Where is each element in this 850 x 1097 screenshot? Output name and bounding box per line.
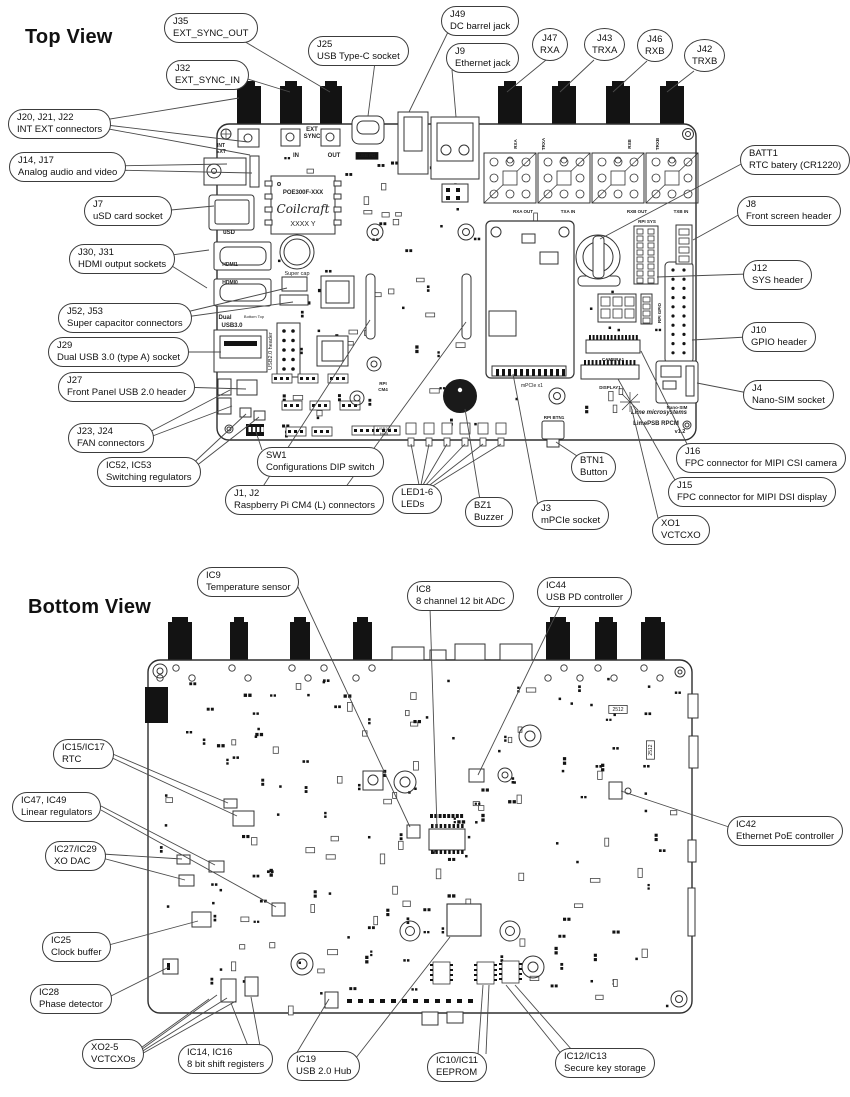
- silkscreen-text: USB3.0: [221, 323, 243, 329]
- usb2-header-icon: [277, 323, 300, 377]
- callout-desc: EXT_SYNC_OUT: [173, 28, 249, 40]
- callout-ref: J30, J31: [78, 247, 166, 259]
- pcb-annotation-diagram: EXTSYNCINOUTINTEXTUSB PDPOE300F-XXXCoilc…: [0, 0, 850, 1097]
- callout-ref: J27: [67, 375, 186, 387]
- regulator-icon: [240, 408, 251, 417]
- callout-ic25: IC25Clock buffer: [42, 932, 111, 962]
- callout-ref: BZ1: [474, 500, 504, 512]
- callout-ref: J15: [677, 480, 827, 492]
- callout-ref: J46: [645, 34, 665, 46]
- silkscreen-text: CAMERA1: [602, 357, 625, 362]
- callout-ref: XO2-5: [91, 1042, 135, 1054]
- gpio-header-icon: [665, 262, 693, 363]
- callout-j20: J20, J21, J22INT EXT connectors: [8, 109, 111, 139]
- silkscreen-text: uSD: [223, 230, 236, 236]
- callout-j12: J12SYS header: [743, 260, 812, 290]
- callout-j14: J14, J17Analog audio and video: [9, 152, 126, 182]
- super-cap-icon: [280, 235, 314, 269]
- starburst-icon: [620, 392, 640, 412]
- callout-ic27: IC27/IC29XO DAC: [45, 841, 106, 871]
- callout-j32: J32EXT_SYNC_IN: [166, 60, 249, 90]
- callout-desc: mPCIe socket: [541, 515, 600, 527]
- callout-desc: DC barrel jack: [450, 21, 510, 33]
- callout-ref: IC15/IC17: [62, 742, 105, 754]
- dc-barrel-jack-icon: [398, 112, 428, 174]
- callout-ic28: IC28Phase detector: [30, 984, 112, 1014]
- callout-ref: J52, J53: [67, 306, 183, 318]
- callout-ref: J9: [455, 46, 510, 58]
- silkscreen-text: Dual: [218, 315, 231, 321]
- leader-line: [693, 213, 742, 240]
- callout-ref: LED1-6: [401, 487, 433, 499]
- callout-ref: J8: [746, 199, 832, 211]
- clock-buffer-icon: [192, 912, 211, 927]
- leader-line: [423, 444, 501, 492]
- audio-jack-icon: [204, 156, 259, 187]
- callout-ref: J14, J17: [18, 155, 117, 167]
- silkscreen-text: RPI: [379, 381, 387, 386]
- silkscreen-text: HDMI0: [222, 280, 238, 286]
- callout-ref: J16: [685, 446, 837, 458]
- silkscreen-text: Bottom Top: [244, 314, 265, 319]
- regulator-icon: [254, 411, 265, 420]
- silkscreen-text: Coilcraft: [277, 202, 330, 216]
- callout-j4: J4Nano-SIM socket: [743, 380, 834, 410]
- callout-sw1: SW1Configurations DIP switch: [257, 447, 384, 477]
- usd-socket-icon: [209, 195, 254, 230]
- callout-ref: IC10/IC11: [436, 1055, 478, 1067]
- silkscreen-text: RXA OUT: [513, 209, 533, 214]
- callout-ic19: IC19USB 2.0 Hub: [287, 1051, 360, 1081]
- callout-desc: VCTCXO: [661, 530, 701, 542]
- callout-desc: GPIO header: [751, 337, 807, 349]
- callout-desc: EEPROM: [436, 1067, 478, 1079]
- callout-desc: uSD card socket: [93, 211, 163, 223]
- callout-desc: LEDs: [401, 499, 433, 511]
- leader-line: [556, 442, 577, 456]
- callout-ref: IC52, IC53: [106, 460, 192, 472]
- silkscreen-text: RPI BTN1: [544, 415, 565, 420]
- leader-line: [692, 337, 747, 340]
- silkscreen-text: XXXX Y: [290, 221, 315, 228]
- silkscreen-text: TRXB: [655, 137, 660, 150]
- callout-desc: USB PD controller: [546, 592, 623, 604]
- callout-ic47: IC47, IC49Linear regulators: [12, 792, 101, 822]
- silkscreen-text: HDMI1: [222, 262, 238, 268]
- silkscreen-text: POE300F-XXX: [283, 190, 323, 196]
- leader-line: [409, 32, 448, 112]
- silkscreen-text: HUB: [380, 431, 389, 436]
- callout-ref: J7: [93, 199, 163, 211]
- callout-led: LED1-6LEDs: [392, 484, 442, 514]
- leader-line: [452, 70, 456, 117]
- callout-ic52: IC52, IC53Switching regulators: [97, 457, 201, 487]
- callout-desc: USB 2.0 Hub: [296, 1066, 351, 1078]
- callout-ref: XO1: [661, 518, 701, 530]
- callout-desc: Linear regulators: [21, 807, 92, 819]
- silkscreen-text: DISPLAY1: [599, 385, 621, 390]
- callout-desc: Nano-SIM socket: [752, 395, 825, 407]
- callout-desc: Configurations DIP switch: [266, 462, 375, 474]
- callout-ic9: IC9Temperature sensor: [197, 567, 299, 597]
- callout-desc: Dual USB 3.0 (type A) socket: [57, 352, 180, 364]
- callout-ic14: IC14, IC168 bit shift registers: [178, 1044, 273, 1074]
- usb3-socket-icon: [214, 330, 267, 372]
- callout-ref: J47: [540, 33, 560, 45]
- callout-j25: J25USB Type-C socket: [308, 36, 409, 66]
- silkscreen-text: TXB IN: [674, 209, 689, 214]
- callout-ref: IC8: [416, 584, 505, 596]
- callout-ref: J20, J21, J22: [17, 112, 102, 124]
- callout-ref: IC25: [51, 935, 102, 947]
- callout-desc: TRXB: [692, 56, 717, 68]
- silkscreen-text: 2512: [612, 707, 623, 713]
- callout-desc: Secure key storage: [564, 1063, 646, 1075]
- callout-xo2: XO2-5VCTCXOs: [82, 1039, 144, 1069]
- callout-ref: J42: [692, 44, 717, 56]
- display-fpc-icon: [581, 365, 639, 379]
- callout-ref: IC9: [206, 570, 290, 582]
- callout-j15: J15FPC connector for MIPI DSI display: [668, 477, 836, 507]
- button-icon: [542, 421, 564, 447]
- silkscreen-text: RXB OUT: [627, 209, 648, 214]
- callout-desc: RTC: [62, 754, 105, 766]
- callout-desc: HDMI output sockets: [78, 259, 166, 271]
- fan-connector-icon: [218, 398, 231, 414]
- sync-connector-pads: [238, 129, 340, 147]
- callout-j30: J30, J31HDMI output sockets: [69, 244, 175, 274]
- silkscreen-text: TRXA: [541, 137, 546, 150]
- nano-sim-icon: [656, 361, 698, 403]
- callout-desc: XO DAC: [54, 856, 97, 868]
- callout-desc: Switching regulators: [106, 472, 192, 484]
- callout-desc: INT EXT connectors: [17, 124, 102, 136]
- callout-ref: J23, J24: [77, 426, 145, 438]
- callout-desc: Button: [580, 467, 607, 479]
- callout-ref: J12: [752, 263, 803, 275]
- callout-desc: Ethernet jack: [455, 58, 510, 70]
- callout-ref: IC27/IC29: [54, 844, 97, 856]
- callout-ref: J4: [752, 383, 825, 395]
- callout-desc: RXB: [645, 46, 665, 58]
- silkscreen-text: 2512: [648, 744, 654, 755]
- mpcie-module-icon: [486, 221, 574, 378]
- callout-ref: J35: [173, 16, 249, 28]
- callout-ref: SW1: [266, 450, 375, 462]
- callout-ref: IC44: [546, 580, 623, 592]
- callout-j10: J10GPIO header: [742, 322, 816, 352]
- silkscreen-text: Super cap: [284, 271, 309, 277]
- leader-line: [697, 383, 748, 393]
- callout-ref: BTN1: [580, 455, 607, 467]
- leader-line: [368, 62, 375, 116]
- callout-ref: IC28: [39, 987, 103, 999]
- silkscreen-text: mPCIe x1: [521, 383, 543, 389]
- board-drawing: EXTSYNCINOUTINTEXTUSB PDPOE300F-XXXCoilc…: [0, 0, 850, 1097]
- logic-chip-icon: [321, 276, 354, 308]
- callout-desc: VCTCXOs: [91, 1054, 135, 1066]
- callout-desc: Raspberry Pi CM4 (L) connectors: [234, 500, 375, 512]
- callout-desc: Clock buffer: [51, 947, 102, 959]
- callout-j1: J1, J2Raspberry Pi CM4 (L) connectors: [225, 485, 384, 515]
- callout-desc: RXA: [540, 45, 560, 57]
- callout-j9: J9Ethernet jack: [446, 43, 519, 73]
- callout-ref: IC14, IC16: [187, 1047, 264, 1059]
- buzzer-icon: [443, 379, 477, 413]
- callout-ic10: IC10/IC11EEPROM: [427, 1052, 487, 1082]
- usb-pd-controller-icon: [469, 769, 484, 782]
- callout-ic42: IC42Ethernet PoE controller: [727, 816, 843, 846]
- cm4-connector-icon: [366, 274, 375, 339]
- super-cap-connectors-icon: [280, 277, 308, 305]
- bottom-view-board: 25122512: [145, 617, 698, 1025]
- callout-desc: 8 bit shift registers: [187, 1059, 264, 1071]
- callout-ref: J3: [541, 503, 600, 515]
- callout-j49: J49DC barrel jack: [441, 6, 519, 36]
- silkscreen-text: SYNC: [304, 134, 321, 140]
- silkscreen-text: EXT: [306, 127, 318, 133]
- callout-ref: IC47, IC49: [21, 795, 92, 807]
- silkscreen-text: RPI SYS: [638, 219, 656, 224]
- callout-ref: BATT1: [749, 148, 841, 160]
- callout-bz1: BZ1Buzzer: [465, 497, 513, 527]
- callout-desc: Front Panel USB 2.0 header: [67, 387, 186, 399]
- callout-desc: Analog audio and video: [18, 167, 117, 179]
- leader-line: [98, 98, 239, 121]
- shield-block-icon: [145, 687, 168, 723]
- callout-desc: Phase detector: [39, 999, 103, 1011]
- silkscreen-text: OUT: [328, 153, 341, 159]
- callout-ref: IC19: [296, 1054, 351, 1066]
- callout-j23: J23, J24FAN connectors: [68, 423, 154, 453]
- callout-desc: FAN connectors: [77, 438, 145, 450]
- battery-holder-icon: [576, 235, 620, 286]
- callout-ref: IC12/IC13: [564, 1051, 646, 1063]
- callout-ref: J49: [450, 9, 510, 21]
- silkscreen-text: USB PD: [359, 153, 377, 158]
- callout-ic44: IC44USB PD controller: [537, 577, 632, 607]
- callout-desc: TRXA: [592, 45, 617, 57]
- callout-desc: EXT_SYNC_IN: [175, 75, 240, 87]
- callout-j27: J27Front Panel USB 2.0 header: [58, 372, 195, 402]
- callout-j29: J29Dual USB 3.0 (type A) socket: [48, 337, 189, 367]
- silkscreen-text: RXB: [627, 139, 632, 149]
- callout-j35: J35EXT_SYNC_OUT: [164, 13, 258, 43]
- usb-hub-chip-icon: [447, 904, 481, 936]
- callout-desc: Buzzer: [474, 512, 504, 524]
- callout-ref: J25: [317, 39, 400, 51]
- callout-j16: J16FPC connector for MIPI CSI camera: [676, 443, 846, 473]
- leader-line: [560, 60, 594, 92]
- callout-ref: J32: [175, 63, 240, 75]
- callout-j8: J8Front screen header: [737, 196, 841, 226]
- silkscreen-text: LimePSB RPCM: [633, 421, 679, 427]
- camera-fpc-icon: [586, 340, 640, 353]
- cm4-connector-icon: [462, 274, 471, 339]
- callout-desc: USB Type-C socket: [317, 51, 400, 63]
- callout-desc: Front screen header: [746, 211, 832, 223]
- silkscreen-text: RXA: [513, 139, 518, 149]
- callout-ref: J1, J2: [234, 488, 375, 500]
- callout-btn1: BTN1Button: [571, 452, 616, 482]
- callout-desc: Ethernet PoE controller: [736, 831, 834, 843]
- silkscreen-text: RPI GPIO: [657, 303, 662, 324]
- callout-ic12: IC12/IC13Secure key storage: [555, 1048, 655, 1078]
- silkscreen-text: IN: [293, 153, 299, 159]
- callout-desc: FPC connector for MIPI DSI display: [677, 492, 827, 504]
- temp-sensor-icon: [407, 825, 420, 838]
- top-view-title: Top View: [25, 26, 113, 49]
- callout-desc: 8 channel 12 bit ADC: [416, 596, 505, 608]
- fp-usb-header-icon: [237, 380, 257, 395]
- callout-desc: SYS header: [752, 275, 803, 287]
- callout-ic15: IC15/IC17RTC: [53, 739, 114, 769]
- usb-c-socket-icon: [352, 116, 384, 144]
- callout-j3: J3mPCIe socket: [532, 500, 609, 530]
- callout-desc: FPC connector for MIPI CSI camera: [685, 458, 837, 470]
- silkscreen-text: USB2.0 header: [268, 332, 274, 370]
- callout-j46: J46RXB: [637, 29, 673, 62]
- callout-ref: J10: [751, 325, 807, 337]
- callout-ic8: IC88 channel 12 bit ADC: [407, 581, 514, 611]
- callout-j52: J52, J53Super capacitor connectors: [58, 303, 192, 333]
- silkscreen-text: TXA IN: [561, 209, 576, 214]
- callout-j7: J7uSD card socket: [84, 196, 172, 226]
- callout-batt1: BATT1RTC batery (CR1220): [740, 145, 850, 175]
- callout-xo1: XO1VCTCXO: [652, 515, 710, 545]
- callout-desc: RTC batery (CR1220): [749, 160, 841, 172]
- callout-desc: Super capacitor connectors: [67, 318, 183, 330]
- callout-j47: J47RXA: [532, 28, 568, 61]
- silkscreen-text: CM4: [378, 387, 388, 392]
- bottom-view-title: Bottom View: [28, 596, 151, 619]
- silkscreen-text: Lime microsystems: [631, 410, 688, 416]
- top-view-board: EXTSYNCINOUTINTEXTUSB PDPOE300F-XXXCoilc…: [204, 81, 698, 447]
- callout-desc: Temperature sensor: [206, 582, 290, 594]
- callout-ref: IC42: [736, 819, 834, 831]
- phase-detector-icon: [163, 959, 178, 974]
- callout-ref: J43: [592, 33, 617, 45]
- callout-ref: J29: [57, 340, 180, 352]
- adc-chip-icon: [429, 829, 465, 850]
